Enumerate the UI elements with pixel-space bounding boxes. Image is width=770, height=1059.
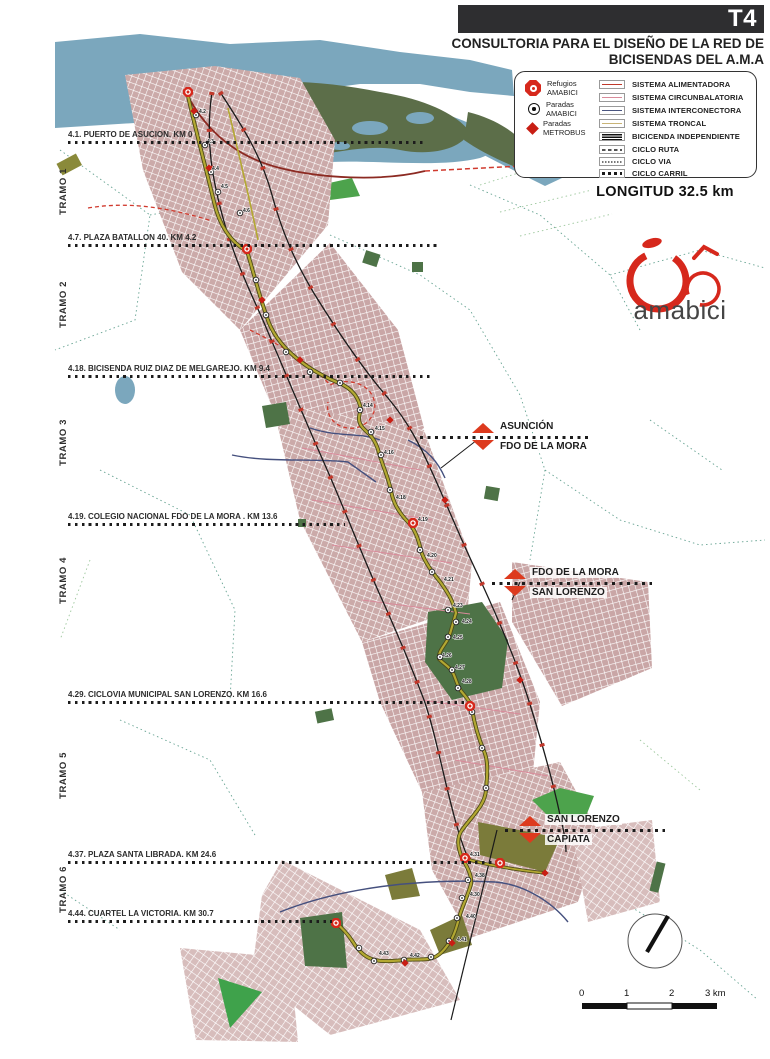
scale-tick: 0	[579, 988, 584, 999]
scale-tick: 1	[624, 988, 629, 999]
route-point-label: 4.38	[475, 873, 485, 879]
parada-dot	[239, 212, 241, 214]
legend-label: Paradas	[543, 119, 586, 128]
parada-dot	[285, 351, 287, 353]
line-swatch	[602, 97, 622, 99]
sheet-tag: T4	[728, 7, 757, 31]
waypoint-label: 4.29. CICLOVIA MUNICIPAL SAN LORENZO. KM…	[68, 690, 468, 699]
legend-row: CICLO VIA	[599, 156, 671, 167]
route-point-label: 4.18	[396, 495, 406, 501]
boundary-diamond-icon	[504, 586, 526, 596]
boundary-label-fdo-sanlorenzo: FDO DE LA MORA SAN LORENZO	[492, 566, 667, 602]
line-swatch	[602, 123, 622, 125]
title-bar: T4	[458, 5, 764, 33]
route-point-label: 4.6	[243, 208, 250, 214]
legend-row: SISTEMA INTERCONECTORA	[599, 105, 741, 116]
legend-refugios: Refugios AMABICI	[525, 79, 578, 97]
boundary-city-bottom: FDO DE LA MORA	[498, 441, 589, 452]
parada-dot	[430, 956, 432, 958]
legend-label: CICLO RUTA	[632, 145, 679, 154]
legend-label: SISTEMA TRONCAL	[632, 119, 706, 128]
parada-dot	[255, 279, 257, 281]
refugio-amabici-marker	[495, 858, 505, 868]
route-length-label: LONGITUD 32.5 km	[590, 184, 740, 200]
route-point-label: 4.25	[453, 635, 463, 641]
line-swatch	[602, 134, 622, 140]
route-point-label: 4.19	[418, 517, 428, 523]
parada-dot	[265, 314, 267, 316]
waypoint-label: 4.18. BICISENDA RUIZ DIAZ DE MELGAREJO. …	[68, 364, 430, 373]
map-title-line1: CONSULTORIA PARA EL DISEÑO DE LA RED DE	[344, 36, 764, 52]
waypoint-row: 4.7. PLAZA BATALLON 40. KM 4.2	[68, 233, 440, 247]
tramo-label-5: TRAMO 5	[58, 752, 69, 799]
boundary-label-asuncion-fdo: ASUNCIÓN FDO DE LA MORA	[420, 420, 595, 456]
tramo-label-3: TRAMO 3	[58, 419, 69, 466]
route-point-label: 4.20	[427, 553, 437, 559]
boundary-city-top: ASUNCIÓN	[498, 421, 555, 432]
waypoint-label: 4.7. PLAZA BATALLON 40. KM 4.2	[68, 233, 440, 242]
route-point-label: 4.30	[470, 892, 480, 898]
scale-bar	[582, 1003, 717, 1009]
parada-dot	[467, 879, 469, 881]
tramo-label-4: TRAMO 4	[58, 557, 69, 604]
map-sheet: 4.24.34.44.54.64.144.154.164.184.194.204…	[0, 0, 770, 1059]
boundary-diamond-icon	[519, 833, 541, 843]
parada-dot	[370, 431, 372, 433]
waypoint-label: 4.1. PUERTO DE ASUCION. KM 0	[68, 130, 425, 139]
boundary-diamond-icon	[504, 569, 526, 579]
scale-tick: 2	[669, 988, 674, 999]
legend-row: BICICENDA INDEPENDIENTE	[599, 131, 740, 142]
legend-label: AMABICI	[547, 88, 578, 97]
route-point-label: 4.15	[375, 426, 385, 432]
legend-label: METROBUS	[543, 128, 586, 137]
legend-box: Refugios AMABICI Paradas AMABICI Paradas…	[514, 71, 757, 178]
boundary-diamond-icon	[472, 440, 494, 450]
parada-dot	[485, 787, 487, 789]
route-point-label: 4.27	[455, 665, 465, 671]
legend-label: Refugios	[547, 79, 578, 88]
route-point-label: 4.43	[379, 951, 389, 957]
route-point-label: 4.42	[410, 953, 420, 959]
dotted-leader	[68, 244, 440, 247]
parada-dot	[447, 636, 449, 638]
parada-dot	[455, 621, 457, 623]
route-point-label: 4.2	[199, 109, 206, 115]
parada-dot	[461, 897, 463, 899]
legend-label: SISTEMA CIRCUNBALATORIA	[632, 93, 743, 102]
legend-label: SISTEMA INTERCONECTORA	[632, 106, 741, 115]
parada-dot	[481, 747, 483, 749]
route-point-label: 4.40	[466, 914, 476, 920]
legend-paradas-metrobus: Paradas METROBUS	[525, 119, 586, 137]
tramo-label-1: TRAMO 1	[58, 168, 69, 215]
tramo-label-6: TRAMO 6	[58, 866, 69, 913]
waypoint-row: 4.1. PUERTO DE ASUCION. KM 0	[68, 130, 425, 144]
legend-row: CICLO CARRIL	[599, 168, 688, 179]
parada-dot	[204, 144, 206, 146]
legend-label: CICLO VIA	[632, 157, 671, 166]
boundary-diamond-icon	[519, 816, 541, 826]
parada-dot	[456, 917, 458, 919]
refugio-amabici-marker	[408, 518, 418, 528]
dotted-leader	[68, 701, 468, 704]
refugio-amabici-marker	[183, 87, 193, 97]
boundary-city-bottom: CAPIATA	[545, 834, 592, 845]
parada-dot	[431, 571, 433, 573]
parada-dot	[419, 549, 421, 551]
compass	[628, 914, 682, 968]
refugio-amabici-marker	[331, 918, 341, 928]
dotted-leader	[68, 375, 430, 378]
route-point-label: 4.23	[453, 603, 463, 609]
line-swatch	[602, 84, 622, 86]
legend-label: SISTEMA ALIMENTADORA	[632, 80, 730, 89]
waypoint-row: 4.29. CICLOVIA MUNICIPAL SAN LORENZO. KM…	[68, 690, 468, 704]
line-swatch	[602, 172, 622, 175]
line-swatch	[602, 149, 622, 151]
route-point-label: 4.4	[212, 166, 219, 172]
route-point-label: 4.21	[444, 577, 454, 583]
dotted-leader	[68, 141, 425, 144]
dotted-leader	[68, 861, 496, 864]
waypoint-row: 4.18. BICISENDA RUIZ DIAZ DE MELGAREJO. …	[68, 364, 430, 378]
waypoint-row: 4.44. CUARTEL LA VICTORIA. KM 30.7	[68, 909, 332, 923]
parada-dot	[451, 669, 453, 671]
parada-dot	[373, 960, 375, 962]
refugio-amabici-icon	[525, 80, 541, 96]
parada-dot	[380, 454, 382, 456]
dotted-leader	[68, 920, 332, 923]
line-swatch	[602, 110, 622, 112]
waypoint-label: 4.37. PLAZA SANTA LIBRADA. KM 24.6	[68, 850, 496, 859]
parada-dot	[217, 191, 219, 193]
parada-dot	[447, 609, 449, 611]
parada-dot	[358, 947, 360, 949]
waypoint-label: 4.44. CUARTEL LA VICTORIA. KM 30.7	[68, 909, 332, 918]
legend-label: Paradas	[546, 100, 577, 109]
route-point-label: 4.41	[457, 937, 467, 943]
legend-row: SISTEMA CIRCUNBALATORIA	[599, 92, 743, 103]
parada-dot	[359, 409, 361, 411]
legend-label: BICICENDA INDEPENDIENTE	[632, 132, 740, 141]
amabici-logo-text: amabici	[615, 295, 745, 326]
parada-amabici-icon	[528, 103, 540, 115]
legend-row: SISTEMA ALIMENTADORA	[599, 79, 730, 90]
parada-dot	[195, 114, 197, 116]
boundary-diamond-icon	[472, 423, 494, 433]
dotted-leader	[68, 523, 345, 526]
boundary-city-top: SAN LORENZO	[545, 814, 622, 825]
route-point-label: 4.14	[363, 403, 373, 409]
boundary-city-bottom: SAN LORENZO	[530, 587, 607, 598]
legend-row: CICLO RUTA	[599, 144, 679, 155]
legend-paradas-amabici: Paradas AMABICI	[525, 100, 577, 118]
route-point-label: 4.16	[384, 450, 394, 456]
tramo-label-2: TRAMO 2	[58, 281, 69, 328]
boundary-city-top: FDO DE LA MORA	[530, 567, 621, 578]
waypoint-row: 4.19. COLEGIO NACIONAL FDO DE LA MORA . …	[68, 512, 345, 526]
parada-dot	[389, 489, 391, 491]
map-title-line2: BICISENDAS DEL A.M.A	[344, 52, 764, 68]
route-point-label: 4.24	[462, 619, 472, 625]
legend-label: AMABICI	[546, 109, 577, 118]
parada-dot	[448, 940, 450, 942]
parada-dot	[339, 382, 341, 384]
route-point-label: 4.28	[462, 679, 472, 685]
legend-row: SISTEMA TRONCAL	[599, 118, 706, 129]
map-title: CONSULTORIA PARA EL DISEÑO DE LA RED DE …	[344, 36, 764, 68]
scale-tick: 3 km	[705, 988, 726, 999]
line-swatch	[602, 161, 622, 163]
waypoint-row: 4.37. PLAZA SANTA LIBRADA. KM 24.6	[68, 850, 496, 864]
parada-dot	[457, 687, 459, 689]
legend-label: CICLO CARRIL	[632, 169, 688, 178]
parada-dot	[471, 711, 473, 713]
parada-metrobus-icon	[526, 122, 539, 135]
route-point-label: 4.26	[442, 653, 452, 659]
boundary-label-sanlorenzo-capiata: SAN LORENZO CAPIATA	[505, 813, 680, 849]
parada-dot	[439, 656, 441, 658]
waypoint-label: 4.19. COLEGIO NACIONAL FDO DE LA MORA . …	[68, 512, 345, 521]
route-point-label: 4.5	[221, 184, 228, 190]
